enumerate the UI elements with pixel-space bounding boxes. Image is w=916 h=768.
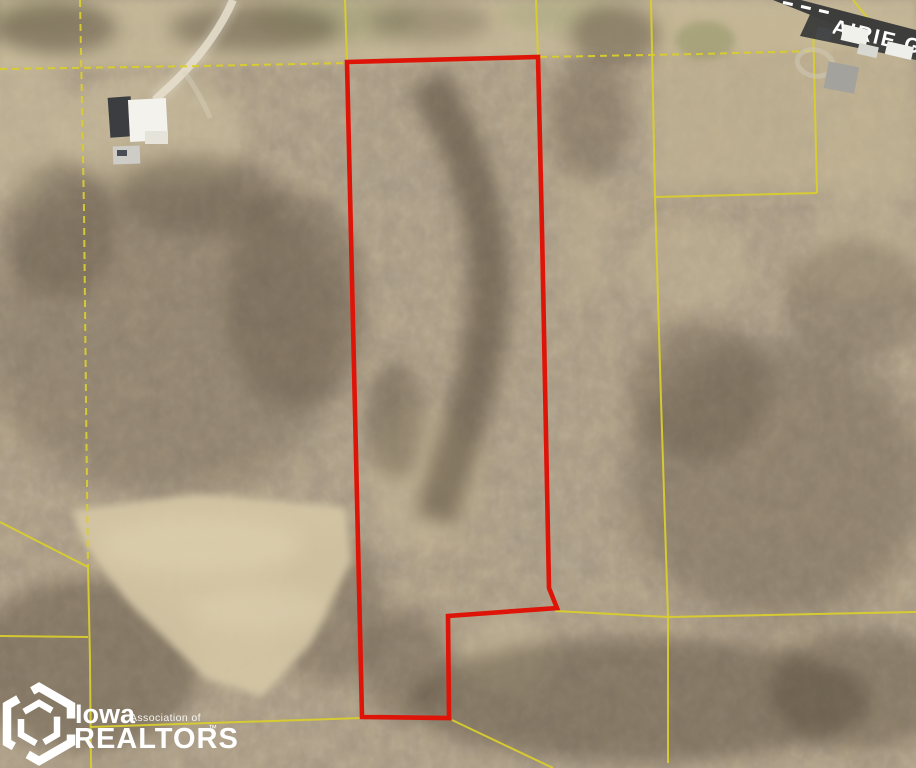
- tree-clump: [170, 4, 340, 52]
- aerial-map-screenshot: AIRIE GROVE Iowa Association of REALTORS…: [0, 0, 916, 768]
- tree-clump: [550, 60, 630, 180]
- tree-clump: [225, 190, 365, 410]
- field-streak: [100, 517, 300, 573]
- tree-clump: [360, 610, 450, 720]
- aerial-map: AIRIE GROVE Iowa Association of REALTORS…: [0, 0, 916, 768]
- tree-clump: [628, 320, 768, 460]
- tree-clump: [367, 360, 423, 480]
- east-clearing-strip: [557, 165, 613, 305]
- tree-clump: [5, 160, 115, 300]
- field-streak: [190, 588, 330, 632]
- tree-clump: [370, 2, 490, 42]
- vehicle: [117, 150, 127, 156]
- east-clearing: [628, 220, 752, 310]
- parcel-line: [0, 636, 88, 637]
- watermark-trademark-symbol: ™: [208, 723, 217, 733]
- house-porch: [145, 131, 168, 144]
